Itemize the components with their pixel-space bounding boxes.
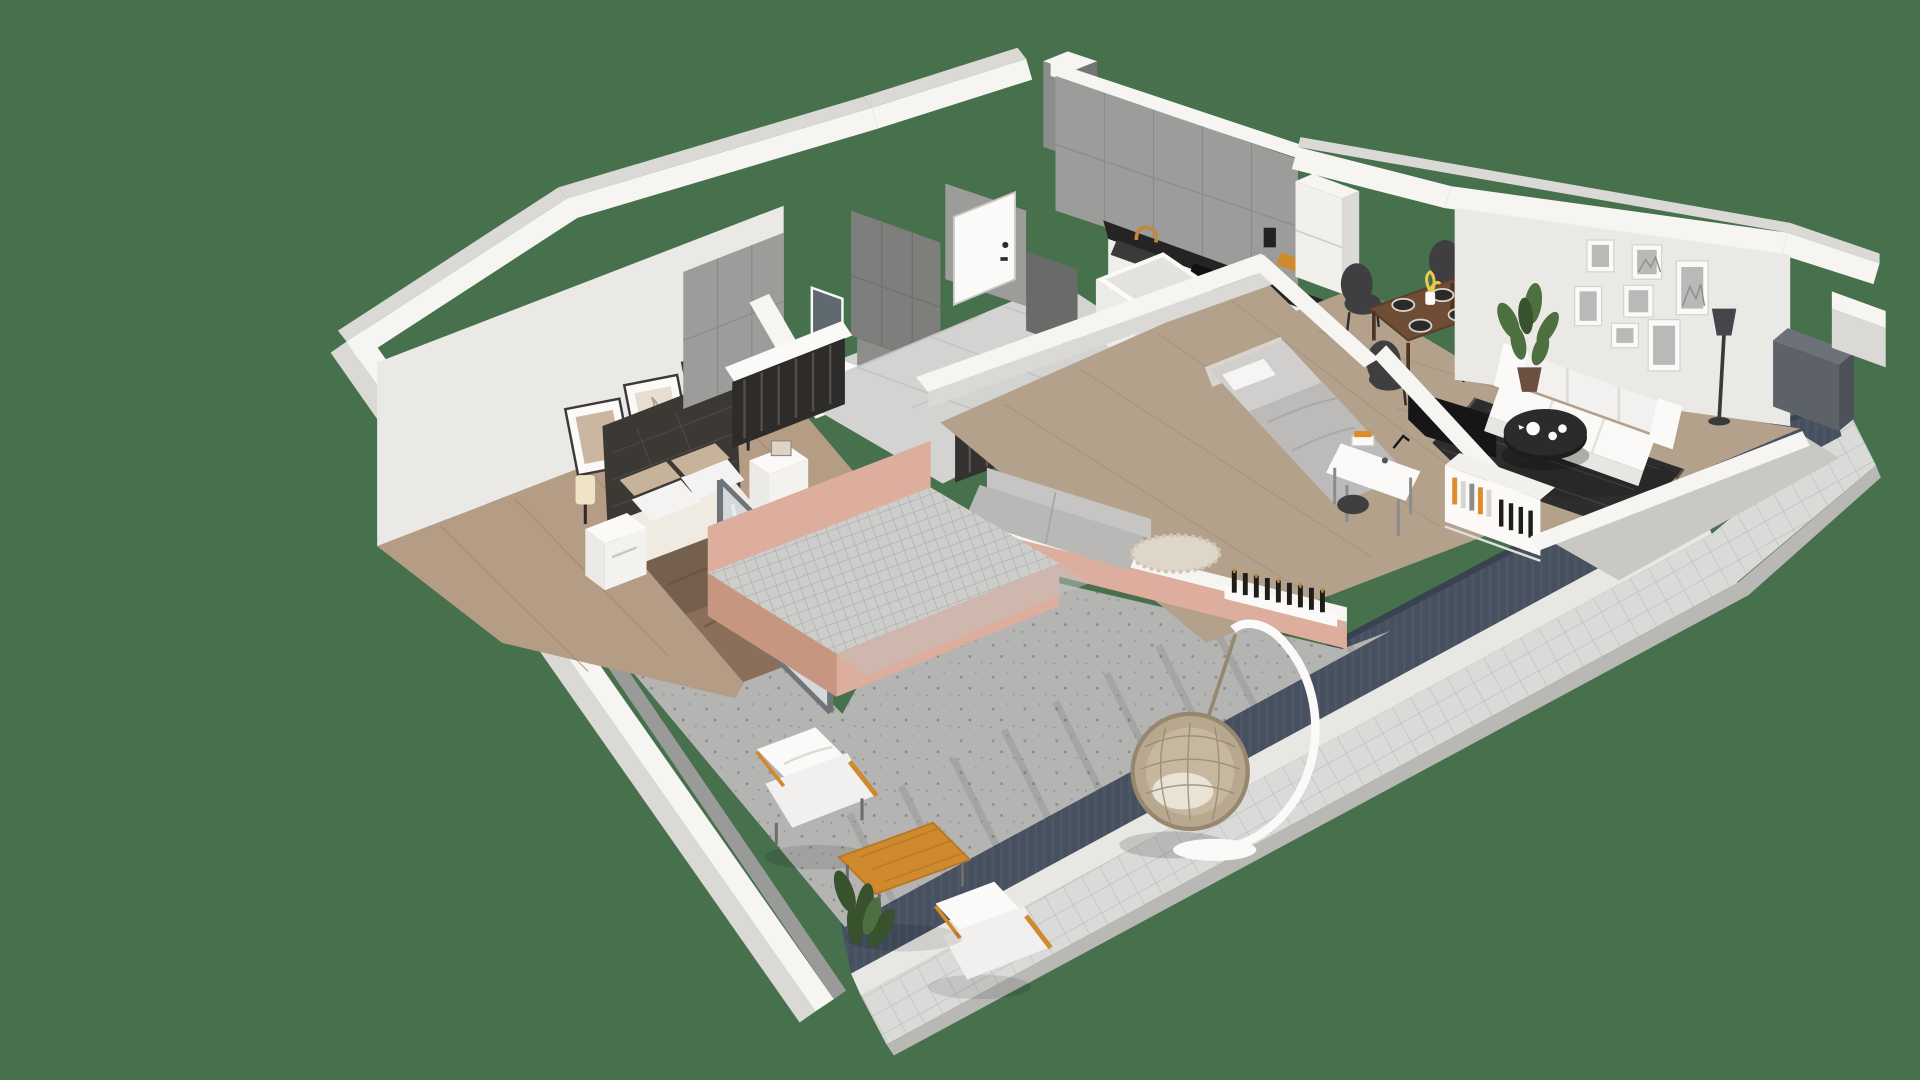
floorplan-render [0, 0, 1920, 1080]
scene-svg [0, 0, 1920, 1080]
shag-rug [1131, 535, 1219, 572]
desk-chair [1337, 495, 1369, 515]
knife-block [1264, 228, 1276, 248]
coffee-table [1501, 409, 1589, 470]
